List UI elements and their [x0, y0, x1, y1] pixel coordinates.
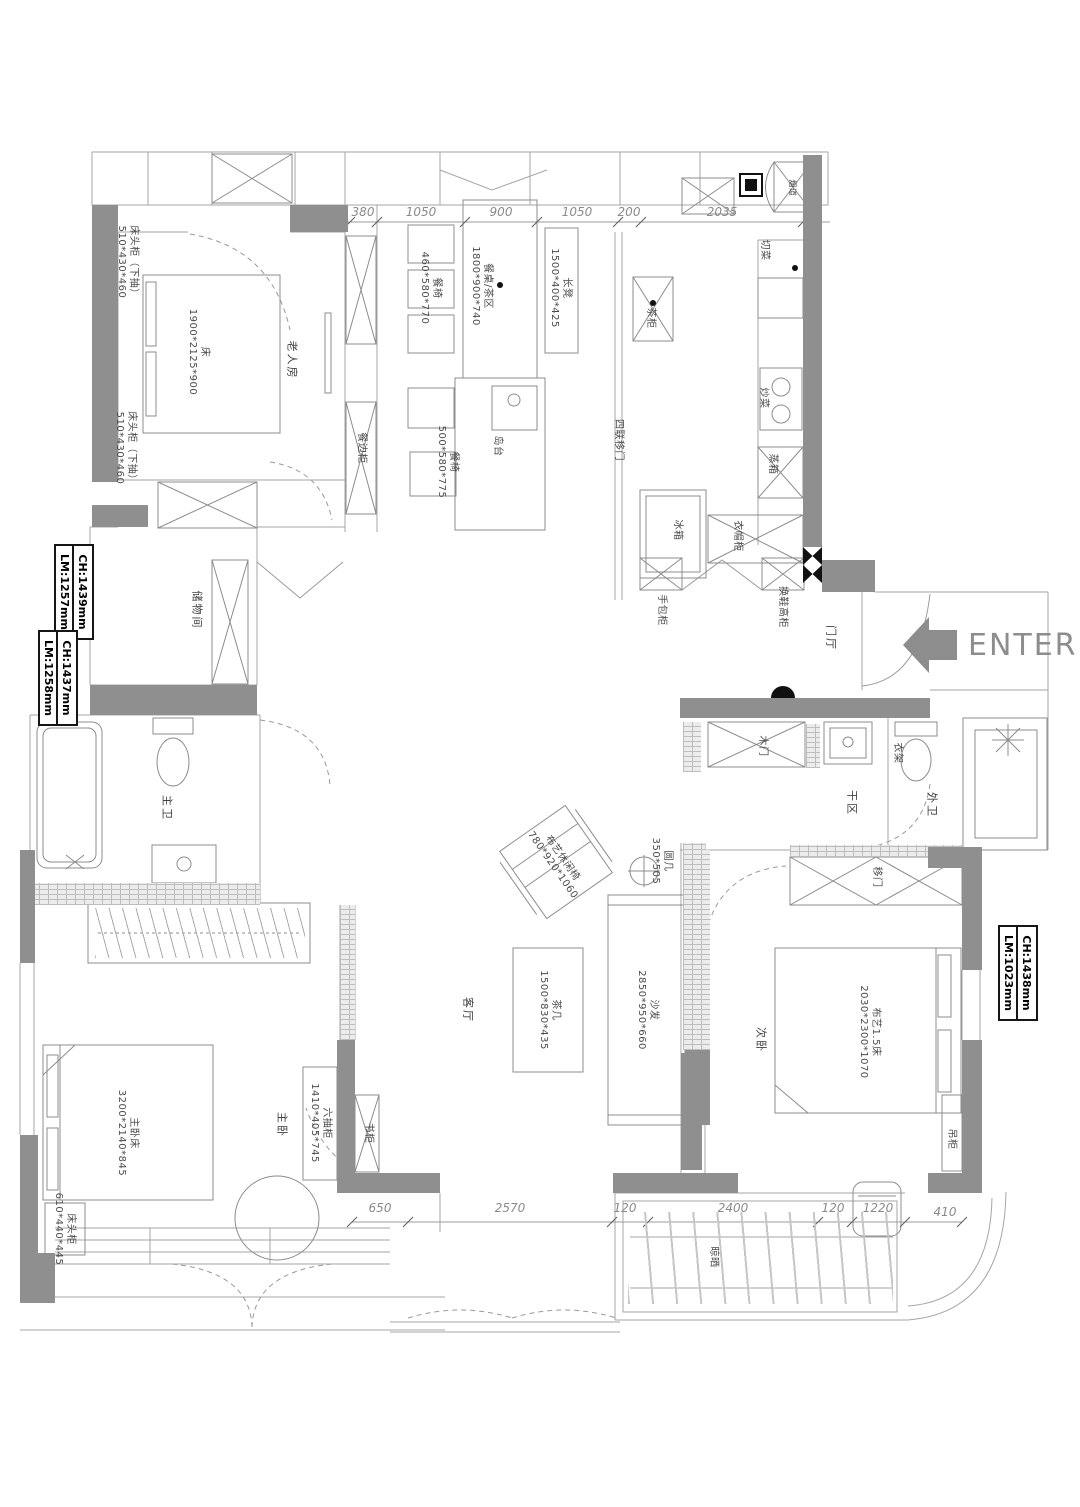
- dim-bottom-6: 410: [934, 1205, 957, 1219]
- wall: [928, 1173, 982, 1193]
- wall: [92, 505, 148, 527]
- guest-toilet-bowl: [901, 739, 931, 781]
- room-label-master: 主卧: [275, 1112, 288, 1138]
- wall: [337, 1040, 355, 1193]
- room-label-storage: 储物间: [190, 591, 203, 630]
- wall: [613, 1173, 738, 1193]
- label-six-drawer: 六抽柜 1410*405*745: [308, 1083, 332, 1163]
- tag-left-upper-ch: CH:1439mm: [72, 544, 94, 640]
- label-bag-cabinet: 手包柜: [655, 594, 667, 626]
- wall: [20, 1135, 38, 1253]
- dim-top-5: 2035: [707, 205, 738, 219]
- wall: [803, 155, 822, 547]
- bath-tile-strip: [30, 883, 260, 905]
- label-chair-left: 餐椅 460*580*770: [418, 252, 442, 325]
- label-hanging-cabinet: 吊柜: [945, 1129, 957, 1150]
- label-flue: 烟道: [787, 180, 797, 197]
- label-steamer: 蒸箱: [766, 454, 778, 475]
- shower-icon: [992, 724, 1024, 756]
- room-label-master-bath: 主卫: [160, 795, 173, 821]
- wall: [962, 1040, 982, 1193]
- label-second-bed: 布艺1.5床 2030*2300*1070: [857, 985, 881, 1078]
- tag-left-lower-ch: CH:1437mm: [56, 630, 78, 726]
- label-tea-table: 茶几 1500*830*435: [537, 970, 561, 1050]
- label-chopping: 切菜: [758, 240, 770, 261]
- label-drying: 晾晒: [707, 1247, 719, 1268]
- label-bookcase: 书柜: [362, 1123, 374, 1144]
- dim-top-1: 1050: [406, 205, 437, 219]
- guest-toilet-tank: [895, 722, 937, 736]
- socket-icon: [650, 300, 656, 306]
- label-bench: 长凳 1500*400*425: [548, 248, 572, 328]
- dim-bottom-0: 650: [369, 1201, 392, 1215]
- label-round-table: 圆几 350*505: [649, 838, 673, 885]
- room-label-elder: 老人房: [285, 341, 298, 380]
- label-sliding-door: 移门: [870, 867, 882, 888]
- wall: [20, 1253, 55, 1303]
- label-four-panel-door: 四联移门: [612, 419, 624, 461]
- label-master-bed: 主卧床 3200*2140*845: [115, 1090, 139, 1177]
- room-label-second: 次卧: [754, 1027, 767, 1053]
- label-elder-bed: 床 1900*2125*900: [186, 309, 210, 396]
- label-clothes-rack: 衣架: [891, 743, 903, 764]
- dim-top-2: 900: [490, 205, 513, 219]
- closet-hangers: [95, 908, 305, 958]
- label-tea-cabinet: 茶柜: [644, 308, 656, 329]
- tag-right-ch: CH:1438mm: [1016, 925, 1038, 1021]
- round-side-table: [235, 1176, 319, 1260]
- label-fridge: 冰箱: [671, 520, 683, 541]
- divider-hatch: [340, 905, 355, 1040]
- socket-icon: [497, 282, 503, 288]
- dim-top-0: 380: [352, 205, 375, 219]
- dim-bottom-4: 120: [822, 1201, 845, 1215]
- column-icon: [771, 686, 795, 698]
- bath-sink: [152, 845, 216, 883]
- wall: [90, 685, 257, 715]
- dim-top-3: 1050: [562, 205, 593, 219]
- room-label-dry-area: 干区: [845, 790, 858, 816]
- toilet-tank: [153, 718, 193, 734]
- label-sideboard: 餐边柜: [355, 432, 367, 464]
- label-shoe-cabinet: 换鞋高柜: [776, 586, 788, 628]
- label-wood-door: 木门: [756, 736, 768, 757]
- toilet-bowl: [157, 738, 189, 786]
- wall: [20, 850, 35, 963]
- bathtub: [37, 722, 102, 868]
- wall: [680, 698, 930, 718]
- wall-valve-icon: [803, 547, 822, 583]
- bedroom-window-wall-hatch: [683, 843, 705, 1050]
- dry-area-column-hatch: [683, 722, 701, 772]
- floor-plan: 老人房 床 1900*2125*900 床头柜（下抽） 510*430*460 …: [0, 0, 1080, 1507]
- wall: [290, 205, 348, 232]
- label-nightstand-b: 床头柜（下抽） 510*430*460: [113, 411, 137, 485]
- floor-plan-linework: [0, 0, 1080, 1507]
- wall: [822, 560, 875, 592]
- elder-bed: [143, 275, 280, 433]
- label-cooking: 炒菜: [757, 388, 769, 409]
- label-dining-table: 餐桌/茶区 1800*900*740: [469, 246, 493, 326]
- enter-label: ENTER: [968, 628, 1078, 663]
- dim-top-4: 200: [618, 205, 641, 219]
- dim-bottom-1: 2570: [495, 1201, 526, 1215]
- drying-rack-pattern: [628, 1212, 893, 1304]
- label-coat-cabinet: 衣帽柜: [731, 520, 743, 552]
- dim-bottom-3: 2400: [718, 1201, 749, 1215]
- wall: [355, 1173, 440, 1193]
- label-nightstand-a: 床头柜（下抽） 510*430*460: [115, 225, 139, 299]
- dim-bottom-5: 1220: [863, 1201, 894, 1215]
- label-master-nightstand: 床头柜 610*440*445: [52, 1193, 76, 1266]
- socket-icon: [792, 265, 798, 271]
- wall: [681, 1053, 702, 1170]
- label-island: 岛台: [491, 436, 503, 457]
- enter-arrow-icon: [903, 617, 957, 673]
- room-label-guest-bath: 外卫: [925, 792, 938, 818]
- distribution-box-icon: [740, 174, 762, 196]
- label-sofa: 沙发 2850*950*660: [635, 970, 659, 1050]
- shower-room: [963, 718, 1047, 850]
- dim-bottom-2: 120: [614, 1201, 637, 1215]
- mosaic-column-hatch: [806, 724, 820, 768]
- room-label-living: 客厅: [461, 997, 474, 1023]
- label-chair-bottom: 餐椅 500*580*775: [435, 426, 459, 499]
- room-label-foyer: 门厅: [824, 625, 837, 651]
- wall: [962, 862, 982, 970]
